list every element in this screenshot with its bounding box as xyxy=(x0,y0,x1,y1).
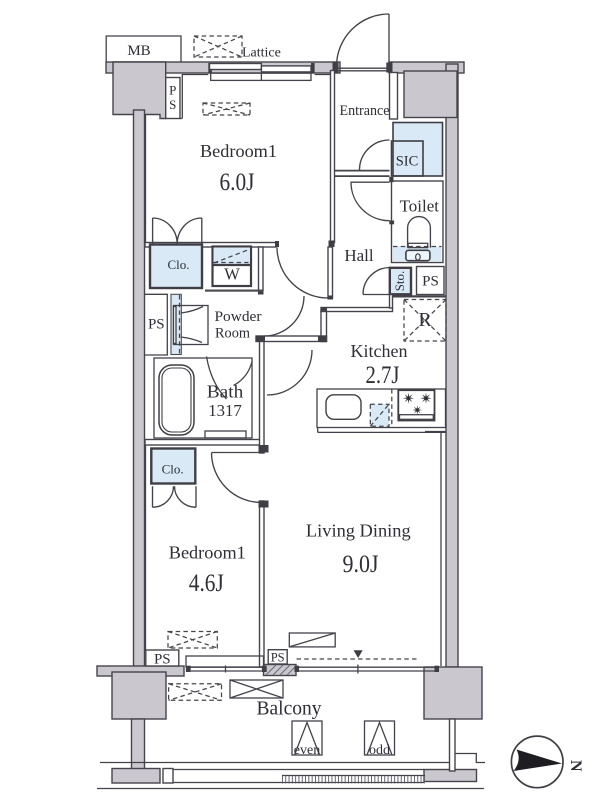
svg-text:Entrance: Entrance xyxy=(340,103,390,119)
svg-text:Sto.: Sto. xyxy=(392,271,407,292)
svg-text:Clo.: Clo. xyxy=(167,257,189,272)
svg-text:1317: 1317 xyxy=(208,401,242,420)
svg-text:Balcony: Balcony xyxy=(257,699,322,720)
svg-text:odd: odd xyxy=(369,743,390,758)
svg-text:Room: Room xyxy=(215,326,250,342)
svg-text:W: W xyxy=(224,265,240,284)
svg-text:PS: PS xyxy=(154,651,171,667)
svg-text:N: N xyxy=(567,760,584,772)
svg-text:Powder: Powder xyxy=(215,309,262,325)
svg-text:Bedroom1: Bedroom1 xyxy=(200,141,277,161)
svg-text:Hall: Hall xyxy=(344,246,374,265)
svg-text:MB: MB xyxy=(127,43,150,59)
svg-text:Lattice: Lattice xyxy=(242,46,281,61)
svg-text:4.6J: 4.6J xyxy=(189,568,224,597)
svg-text:9.0J: 9.0J xyxy=(343,549,379,578)
svg-text:Kitchen: Kitchen xyxy=(351,341,408,361)
svg-text:Living Dining: Living Dining xyxy=(306,521,411,541)
svg-text:R: R xyxy=(418,310,431,331)
svg-text:S: S xyxy=(169,97,176,112)
svg-text:P: P xyxy=(169,83,176,98)
svg-text:Clo.: Clo. xyxy=(162,462,184,477)
svg-text:PS: PS xyxy=(271,651,285,665)
svg-text:2.7J: 2.7J xyxy=(366,360,400,389)
svg-text:Toilet: Toilet xyxy=(400,197,440,216)
svg-text:Bedroom1: Bedroom1 xyxy=(169,543,246,563)
svg-text:PS: PS xyxy=(422,274,439,290)
svg-text:even: even xyxy=(294,743,320,758)
svg-text:PS: PS xyxy=(148,317,165,333)
svg-text:SIC: SIC xyxy=(396,154,419,170)
svg-text:6.0J: 6.0J xyxy=(220,167,255,196)
svg-text:Bath: Bath xyxy=(207,382,244,402)
